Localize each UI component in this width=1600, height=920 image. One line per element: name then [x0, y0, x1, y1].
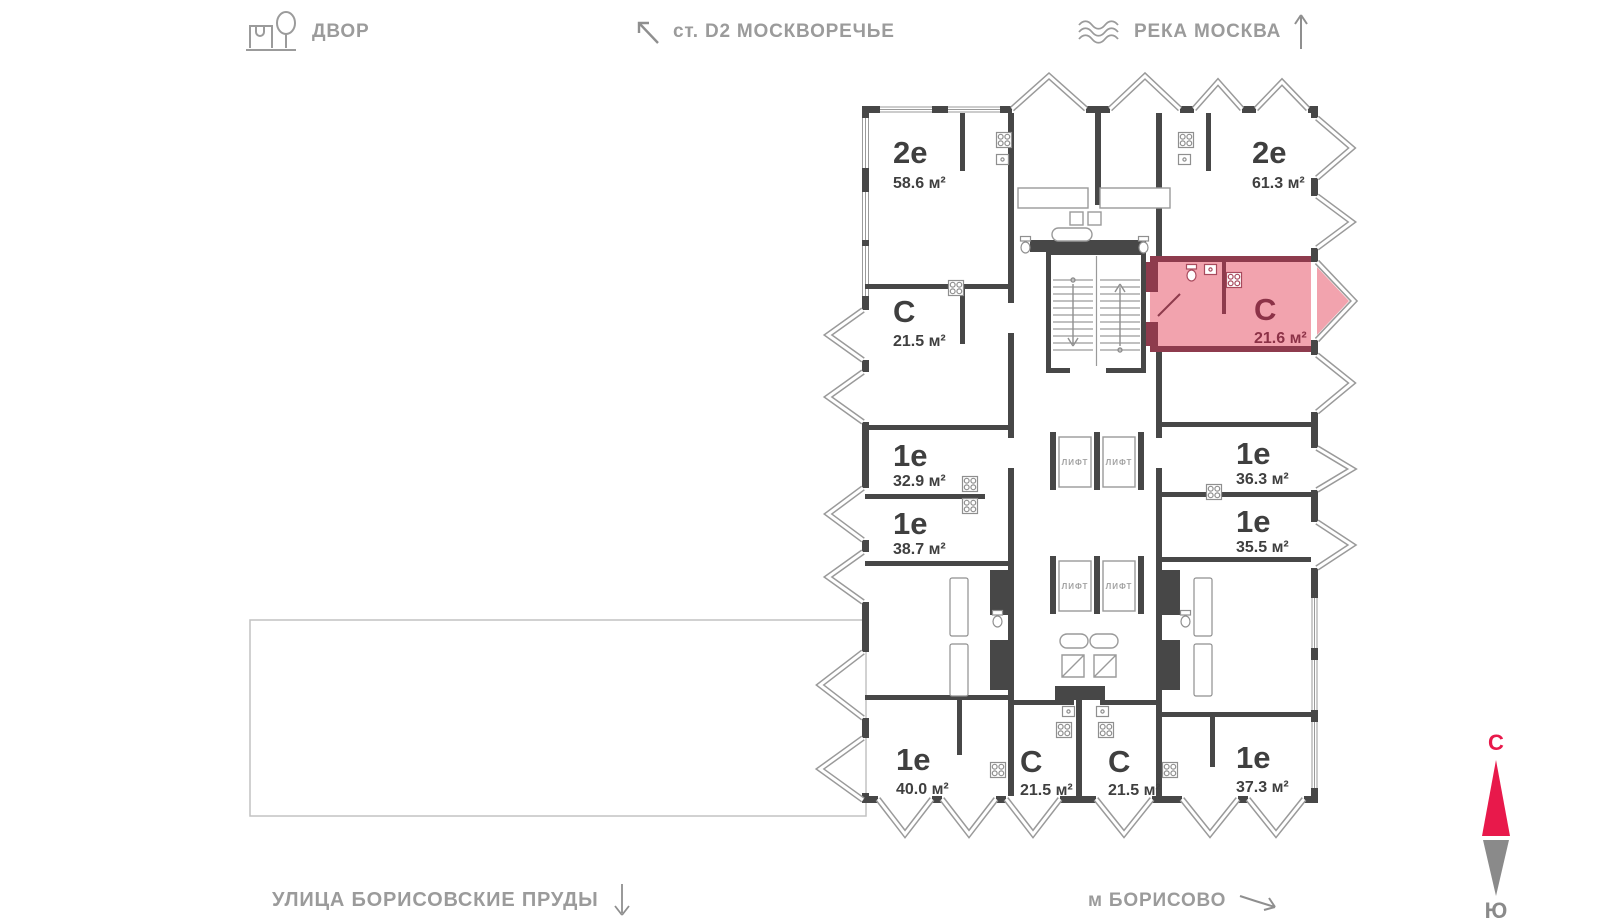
- svg-text:1е[interactable]: 1е: [893, 438, 927, 473]
- svg-text:1е[interactable]: 1е: [893, 506, 927, 541]
- svg-text:40.0 м²: 40.0 м²: [896, 781, 949, 798]
- compass-north-needle: [1482, 760, 1510, 836]
- svg-text:61.3 м²: 61.3 м²: [1252, 175, 1305, 192]
- legend-station-text: ст. D2 МОСКВОРЕЧЬЕ: [673, 21, 895, 43]
- svg-text:38.7 м²: 38.7 м²: [893, 541, 946, 558]
- legend-metro-text: м БОРИСОВО: [1088, 890, 1226, 912]
- elevator-label: ЛИФТ: [1062, 458, 1089, 467]
- apartment-label-1e-35-5[interactable]: 1е 35.5 м²: [1236, 504, 1289, 556]
- svg-text:1е[interactable]: 1е: [1236, 504, 1270, 539]
- svg-text:21.5 м²: 21.5 м²: [1108, 782, 1161, 799]
- apartment-label-1e-32-9[interactable]: 1е 32.9 м²: [893, 438, 946, 490]
- arrow-up-icon: [1293, 13, 1309, 51]
- legend-station: ст. D2 МОСКВОРЕЧЬЕ: [635, 12, 895, 52]
- legend-river: РЕКА МОСКВА: [1076, 12, 1309, 52]
- legend-street: УЛИЦА БОРИСОВСКИЕ ПРУДЫ: [272, 882, 633, 918]
- bathtub-icon: [1194, 644, 1212, 696]
- arrow-down-icon: [611, 882, 633, 918]
- staircase: [1049, 253, 1144, 375]
- arrow-down-right-icon: [1238, 888, 1280, 914]
- floor-plan: ЛИФТ ЛИФТ ЛИФТ ЛИФТ: [0, 0, 1600, 920]
- compass-south-label: Ю: [1485, 898, 1508, 920]
- apartment-label-2e-61-3[interactable]: 2е 61.3 м²: [1252, 135, 1305, 192]
- legend-street-text: УЛИЦА БОРИСОВСКИЕ ПРУДЫ: [272, 889, 599, 912]
- svg-text:2е[interactable]: 2е: [1252, 135, 1286, 170]
- elevator-label: ЛИФТ: [1062, 582, 1089, 591]
- svg-text:58.6 м²: 58.6 м²: [893, 175, 946, 192]
- compass-south-needle: [1483, 840, 1509, 896]
- legend-river-text: РЕКА МОСКВА: [1134, 21, 1281, 43]
- bathtub-icon: [1194, 578, 1212, 636]
- legend-metro: м БОРИСОВО: [1088, 884, 1280, 918]
- apartment-label-2e-58-6[interactable]: 2е 58.6 м²: [893, 135, 946, 192]
- waves-icon: [1076, 19, 1122, 45]
- svg-text:32.9 м²: 32.9 м²: [893, 473, 946, 490]
- bathtub-icon: [950, 578, 968, 636]
- svg-text:37.3 м²: 37.3 м²: [1236, 779, 1289, 796]
- house-tree-icon: [246, 10, 300, 54]
- apartment-label-1e-38-7[interactable]: 1е 38.7 м²: [893, 506, 946, 558]
- apartment-label-1e-37-3[interactable]: 1е 37.3 м²: [1236, 740, 1289, 796]
- svg-text:С[interactable]: С: [1254, 292, 1276, 327]
- svg-text:1е[interactable]: 1е: [1236, 436, 1270, 471]
- legend-courtyard: ДВОР: [246, 8, 369, 56]
- apartment-label-c-21-5-bottom-left[interactable]: С 21.5 м²: [1020, 744, 1073, 799]
- apartment-label-1e-36-3[interactable]: 1е 36.3 м²: [1236, 436, 1289, 488]
- compass: С Ю: [1482, 730, 1510, 920]
- svg-text:2е[interactable]: 2е: [893, 135, 927, 170]
- svg-text:35.5 м²: 35.5 м²: [1236, 539, 1289, 556]
- bathtub-icon: [950, 644, 968, 696]
- svg-text:21.5 м²: 21.5 м²: [1020, 782, 1073, 799]
- svg-text:С[interactable]: С: [1020, 744, 1042, 779]
- legend-courtyard-text: ДВОР: [312, 21, 369, 43]
- arrow-up-left-icon: [635, 18, 661, 46]
- adjacent-building-outline: [250, 620, 866, 816]
- svg-text:1е[interactable]: 1е: [1236, 740, 1270, 775]
- svg-text:С[interactable]: С: [1108, 744, 1130, 779]
- svg-text:36.3 м²: 36.3 м²: [1236, 471, 1289, 488]
- elevator-label: ЛИФТ: [1106, 458, 1133, 467]
- apartment-label-c-21-5-left[interactable]: С 21.5 м²: [893, 294, 946, 350]
- apartment-label-1e-40-0[interactable]: 1е 40.0 м²: [896, 742, 949, 798]
- apartment-label-c-21-5-bottom-right[interactable]: С 21.5 м²: [1108, 744, 1161, 799]
- compass-north-label: С: [1488, 730, 1504, 755]
- svg-text:1е[interactable]: 1е: [896, 742, 930, 777]
- elevator-label: ЛИФТ: [1106, 582, 1133, 591]
- svg-text:21.5 м²: 21.5 м²: [893, 333, 946, 350]
- svg-text:21.6 м²: 21.6 м²: [1254, 330, 1307, 347]
- floorplan-page: ЛИФТ ЛИФТ ЛИФТ ЛИФТ: [0, 0, 1600, 920]
- svg-text:С[interactable]: С: [893, 294, 915, 329]
